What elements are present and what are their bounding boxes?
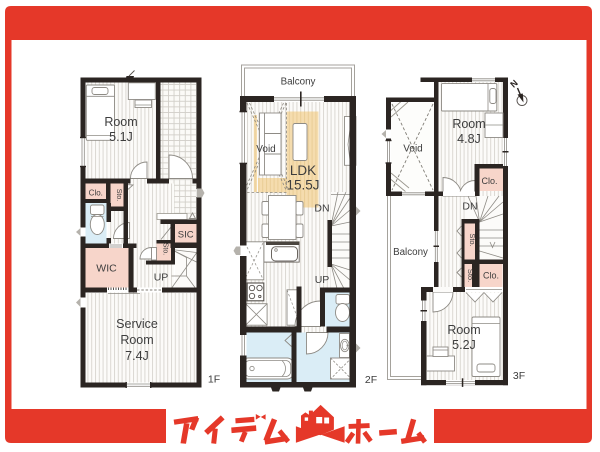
svg-text:Room: Room <box>120 333 153 347</box>
svg-text:7.4J: 7.4J <box>125 349 149 363</box>
svg-text:5.1J: 5.1J <box>109 130 133 144</box>
svg-text:Sto.: Sto. <box>162 243 169 256</box>
svg-text:DN: DN <box>462 201 477 213</box>
svg-text:Void: Void <box>403 144 422 155</box>
svg-text:Balcony: Balcony <box>393 247 428 258</box>
svg-text:Service: Service <box>116 317 158 331</box>
svg-text:15.5J: 15.5J <box>286 178 319 193</box>
svg-text:UP: UP <box>315 274 330 286</box>
svg-text:WIC: WIC <box>96 263 117 275</box>
svg-text:Clo.: Clo. <box>481 176 497 186</box>
svg-text:UP: UP <box>154 272 169 284</box>
svg-text:Void: Void <box>256 144 275 155</box>
svg-text:Balcony: Balcony <box>281 77 316 88</box>
svg-text:Room: Room <box>447 323 480 337</box>
svg-text:LDK: LDK <box>290 163 316 178</box>
svg-text:SIC: SIC <box>178 230 194 241</box>
svg-text:5.2J: 5.2J <box>452 338 476 352</box>
svg-text:1F: 1F <box>208 374 220 386</box>
svg-text:2F: 2F <box>365 374 377 386</box>
svg-text:Sto.: Sto. <box>468 233 477 246</box>
svg-text:3F: 3F <box>513 370 525 382</box>
svg-text:Clo.: Clo. <box>483 271 499 281</box>
svg-text:DN: DN <box>314 203 329 215</box>
svg-text:Sto.: Sto. <box>466 269 475 282</box>
svg-text:Room: Room <box>452 117 485 131</box>
svg-text:Clo.: Clo. <box>89 189 103 198</box>
svg-text:4.8J: 4.8J <box>457 132 481 146</box>
svg-text:Sto.: Sto. <box>115 189 122 202</box>
svg-text:Room: Room <box>104 115 137 129</box>
